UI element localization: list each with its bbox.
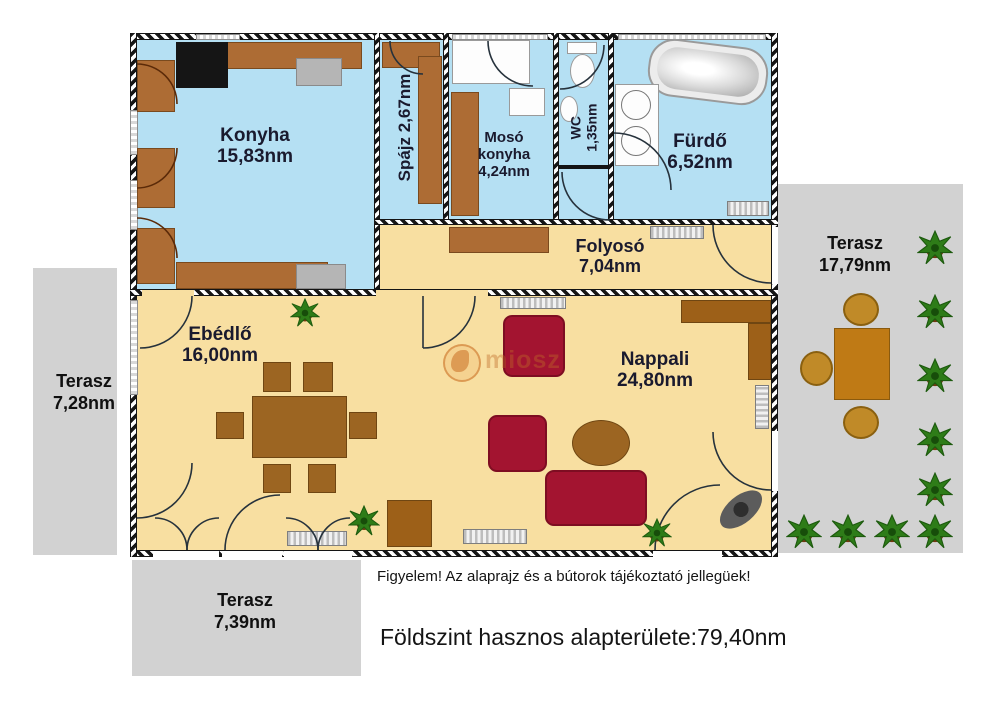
washing-machine-icon bbox=[509, 88, 545, 116]
watermark-logo bbox=[443, 344, 481, 382]
pantry-shelf-side bbox=[418, 56, 442, 204]
dining-chair bbox=[216, 412, 244, 439]
label-folyoso: Folyosó7,04nm bbox=[535, 236, 685, 276]
armchair bbox=[488, 415, 547, 472]
dining-chair bbox=[308, 464, 336, 493]
label-terrace-bottom: Terasz7,39nm bbox=[185, 590, 305, 633]
radiator bbox=[500, 297, 566, 309]
kitchen-cabinet-left bbox=[137, 228, 175, 284]
door-opening bbox=[653, 551, 722, 557]
toilet-tank bbox=[567, 42, 597, 54]
dining-table bbox=[252, 396, 347, 458]
label-furdo: Fürdő6,52nm bbox=[625, 131, 775, 174]
window bbox=[196, 34, 240, 40]
kitchen-cabinet-left bbox=[137, 60, 175, 112]
disclaimer-text: Figyelem! Az alaprajz és a bútorok tájék… bbox=[377, 568, 751, 585]
tv-wall-unit bbox=[681, 300, 771, 323]
wall-konyha-spajz bbox=[374, 33, 380, 289]
laundry-worktop bbox=[452, 40, 530, 84]
label-nappali: Nappali24,80nm bbox=[580, 349, 730, 392]
hallway-cabinet bbox=[449, 227, 549, 253]
dining-chair bbox=[263, 464, 291, 493]
dining-chair bbox=[303, 362, 333, 392]
door-opening bbox=[284, 551, 352, 557]
stove-icon bbox=[176, 42, 228, 88]
bathtub-basin bbox=[655, 45, 761, 99]
door-opening bbox=[772, 227, 778, 284]
label-ebedlo: Ebédlő16,00nm bbox=[150, 324, 290, 367]
sofa bbox=[545, 470, 647, 526]
wall-spajz-moso bbox=[443, 33, 449, 225]
wall-moso-wc bbox=[553, 33, 559, 225]
floor-plan: miosz Konyha15,83nm Spájz 2,67nm Mosó ko… bbox=[0, 0, 1000, 710]
total-area-text: Földszint hasznos alapterülete:79,40nm bbox=[380, 624, 787, 651]
kitchen-counter-gray bbox=[296, 264, 346, 289]
door-opening bbox=[222, 551, 282, 557]
label-moso: Mosó konyha4,24nm bbox=[466, 130, 542, 180]
wall-folyoso-top bbox=[374, 219, 778, 225]
coffee-table bbox=[572, 420, 630, 466]
label-konyha: Konyha15,83nm bbox=[175, 125, 335, 168]
label-terrace-left: Terasz7,28nm bbox=[30, 371, 138, 414]
sideboard bbox=[387, 500, 432, 547]
door-opening bbox=[142, 290, 194, 296]
radiator bbox=[287, 531, 347, 546]
door-opening bbox=[772, 431, 778, 491]
terrace-chair bbox=[843, 293, 879, 326]
radiator bbox=[755, 385, 769, 429]
window bbox=[618, 34, 766, 40]
watermark-swirl bbox=[451, 350, 469, 372]
toilet-icon bbox=[570, 54, 595, 88]
radiator bbox=[463, 529, 527, 544]
door-opening bbox=[376, 290, 488, 296]
label-spajz: Spájz 2,67nm bbox=[395, 45, 414, 210]
dining-chair bbox=[349, 412, 377, 439]
wall-wc-furdo bbox=[608, 33, 614, 225]
terrace-table bbox=[834, 328, 890, 400]
label-wc: WC1,35nm bbox=[568, 88, 599, 168]
tv-wall-unit bbox=[748, 323, 771, 380]
terrace-chair bbox=[843, 406, 879, 439]
bath-sink bbox=[621, 90, 651, 120]
door-opening bbox=[153, 551, 219, 557]
kitchen-sink bbox=[296, 58, 342, 86]
radiator bbox=[727, 201, 769, 216]
watermark-text: miosz bbox=[485, 346, 561, 375]
label-terrace-right: Terasz17,79nm bbox=[795, 233, 915, 276]
terrace-chair bbox=[800, 351, 833, 386]
kitchen-cabinet-left bbox=[137, 148, 175, 208]
